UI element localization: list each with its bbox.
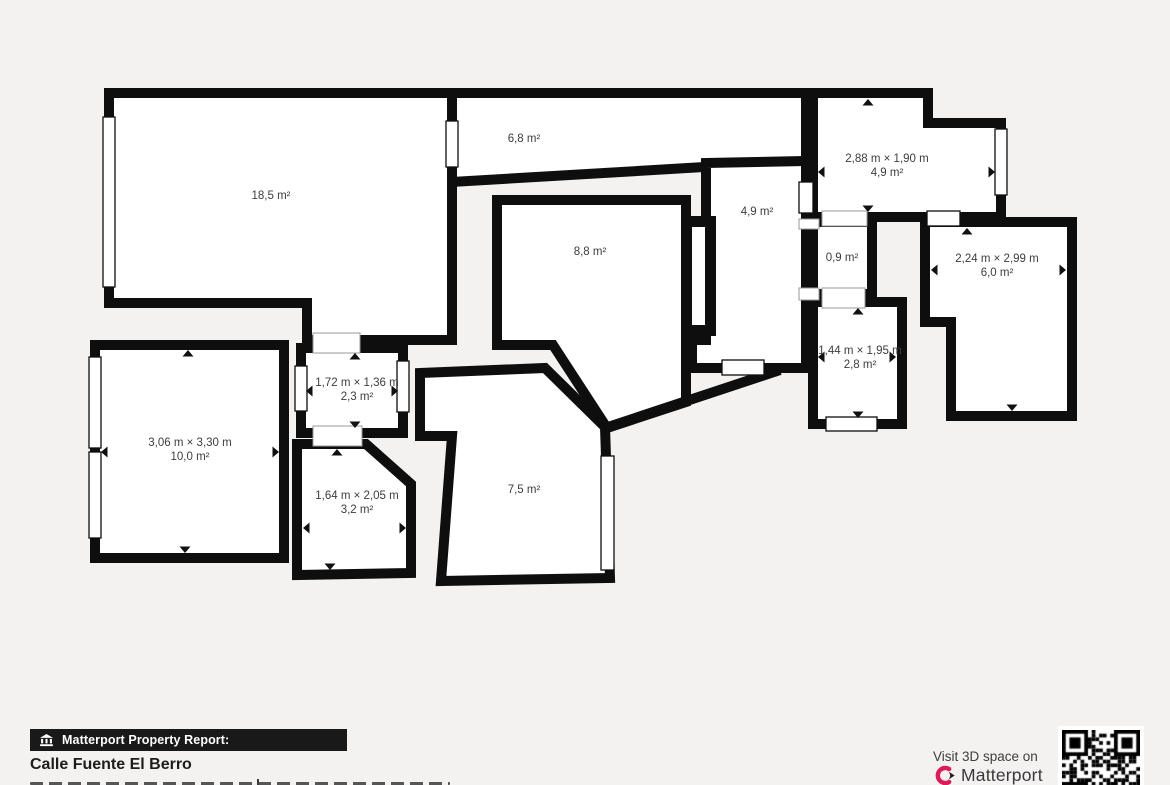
- report-badge: Matterport Property Report:: [30, 729, 347, 751]
- window: [446, 121, 458, 167]
- door-opening: [822, 288, 865, 308]
- room-shape-18-5: [109, 93, 452, 340]
- room-shape-4-9-top-right: [813, 93, 1001, 217]
- door-opening: [799, 219, 819, 229]
- shaft-cavity: [692, 227, 705, 325]
- property-title: Calle Fuente El Berro: [30, 756, 192, 774]
- window: [722, 360, 764, 375]
- window: [89, 452, 101, 538]
- qr-code: [1058, 726, 1144, 785]
- matterport-wordmark: Matterport: [961, 765, 1043, 785]
- window: [89, 357, 101, 448]
- floor-plan: [0, 0, 1170, 785]
- window: [826, 417, 877, 431]
- window: [295, 366, 307, 411]
- room-shape-7-5: [420, 368, 610, 581]
- door-opening: [313, 426, 362, 446]
- door-opening: [313, 333, 360, 353]
- building-icon: [39, 733, 54, 748]
- window: [995, 129, 1007, 195]
- matterport-logo-icon: [935, 765, 956, 785]
- room-shape-2-3: [301, 348, 403, 433]
- window: [799, 182, 813, 213]
- room-shape-10-0: [95, 345, 284, 558]
- room-shape-6-0: [925, 222, 1072, 416]
- walls-layer: [95, 93, 1072, 581]
- matterport-floorplan-report: 18,5 m²6,8 m²2,88 m × 1,90 m4,9 m²4,9 m²…: [0, 0, 1170, 785]
- door-opening: [799, 288, 819, 300]
- room-shape-2-8: [813, 302, 902, 424]
- badge-label: Matterport Property Report:: [62, 733, 229, 747]
- matterport-brand: Matterport: [935, 765, 1043, 785]
- footer-meta-separator: [257, 779, 259, 785]
- room-shape-0-9: [813, 222, 872, 294]
- window: [927, 211, 960, 226]
- window: [103, 117, 115, 287]
- room-shape-3-2: [297, 444, 411, 575]
- window: [397, 361, 409, 412]
- door-opening: [822, 211, 867, 226]
- window: [601, 456, 614, 570]
- visit-3d-label: Visit 3D space on: [933, 749, 1038, 764]
